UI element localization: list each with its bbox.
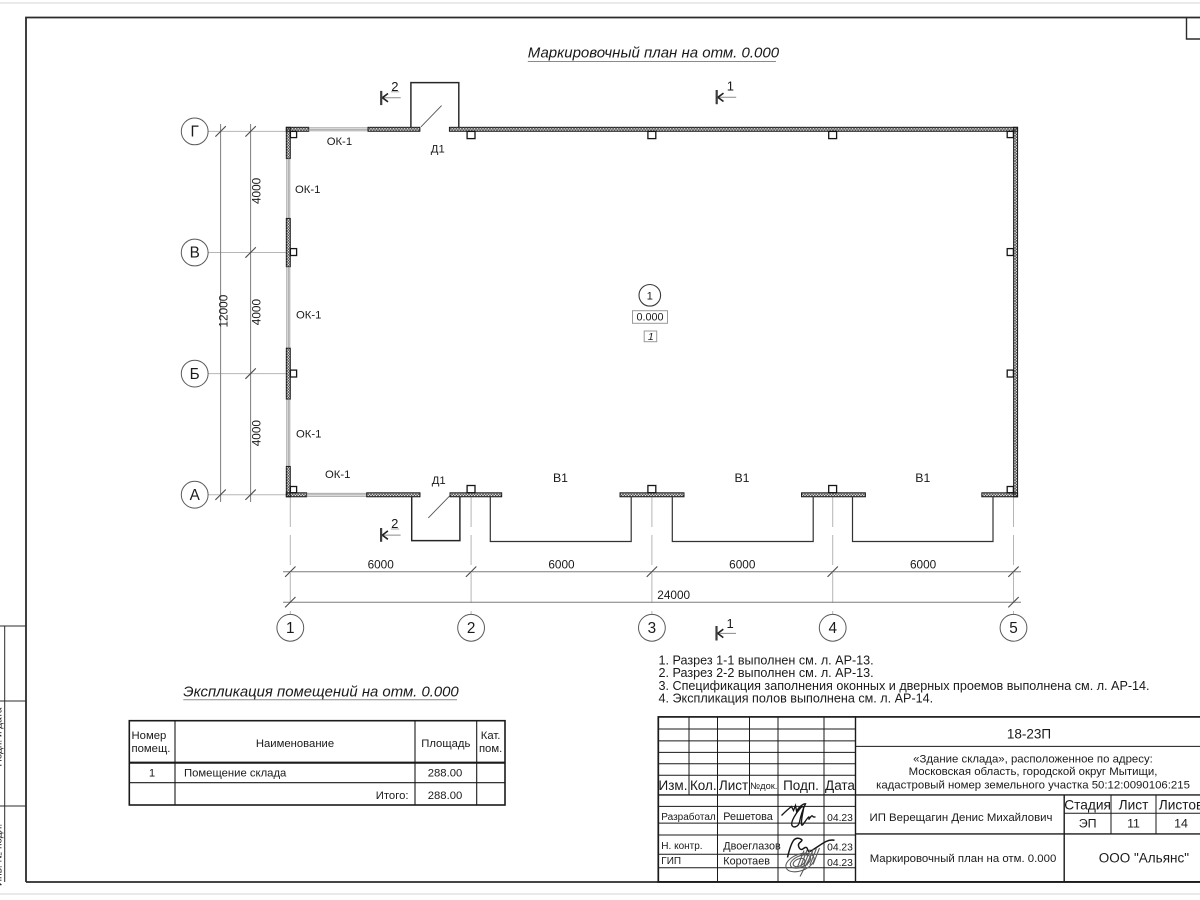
svg-text:пом.: пом. xyxy=(479,743,502,755)
svg-text:Московская область, городской: Московская область, городской округ Мыти… xyxy=(909,766,1158,778)
svg-text:Лист: Лист xyxy=(719,778,748,793)
svg-text:11: 11 xyxy=(1127,817,1140,831)
svg-text:04.23: 04.23 xyxy=(827,813,853,824)
svg-text:ОК-1: ОК-1 xyxy=(325,469,350,481)
svg-text:0.000: 0.000 xyxy=(636,312,663,324)
svg-text:Разработал: Разработал xyxy=(661,811,716,823)
svg-text:«Здание склада», расположенное: «Здание склада», расположенное по адресу… xyxy=(913,753,1153,765)
svg-text:2: 2 xyxy=(467,620,476,637)
svg-text:ОК-1: ОК-1 xyxy=(327,136,352,148)
svg-text:ОК-1: ОК-1 xyxy=(296,309,321,321)
svg-text:Листов: Листов xyxy=(1159,798,1200,813)
svg-text:1: 1 xyxy=(647,290,653,302)
svg-text:4000: 4000 xyxy=(249,420,263,447)
svg-text:В1: В1 xyxy=(734,471,749,485)
svg-text:4000: 4000 xyxy=(249,299,263,326)
svg-text:Номер: Номер xyxy=(132,730,167,742)
svg-text:Д1: Д1 xyxy=(432,475,446,487)
svg-text:Решетова: Решетова xyxy=(723,811,773,823)
svg-text:Д1: Д1 xyxy=(431,143,445,155)
svg-text:1: 1 xyxy=(727,79,734,94)
svg-text:24000: 24000 xyxy=(657,588,690,602)
svg-text:№док.: №док. xyxy=(750,781,777,791)
svg-text:1: 1 xyxy=(727,616,734,631)
svg-text:Двоеглазов: Двоеглазов xyxy=(723,841,781,853)
svg-text:Инв. № подл.: Инв. № подл. xyxy=(0,824,4,886)
svg-text:Коротаев: Коротаев xyxy=(723,856,770,868)
svg-text:4. Экспликация полов выполнена: 4. Экспликация полов выполнена см. л. АР… xyxy=(659,692,934,706)
svg-text:ООО "Альянс": ООО "Альянс" xyxy=(1099,851,1189,866)
svg-text:ГИП: ГИП xyxy=(661,856,681,867)
svg-text:В1: В1 xyxy=(915,471,930,485)
svg-text:6000: 6000 xyxy=(729,557,756,571)
svg-text:Лист: Лист xyxy=(1119,798,1149,813)
svg-text:Подп. и дата: Подп. и дата xyxy=(0,707,4,766)
svg-text:Маркировочный план на отм. 0.0: Маркировочный план на отм. 0.000 xyxy=(528,45,780,62)
svg-text:Итого:: Итого: xyxy=(376,790,409,802)
svg-text:4: 4 xyxy=(828,620,837,637)
svg-text:ОК-1: ОК-1 xyxy=(296,428,321,440)
svg-text:6000: 6000 xyxy=(910,557,937,571)
svg-text:Помещение склада: Помещение склада xyxy=(184,767,287,779)
svg-text:6000: 6000 xyxy=(548,557,575,571)
svg-text:04.23: 04.23 xyxy=(827,843,853,854)
svg-text:14: 14 xyxy=(1174,817,1188,831)
svg-text:ОК-1: ОК-1 xyxy=(295,184,320,196)
svg-text:3: 3 xyxy=(648,620,657,637)
svg-text:Кат.: Кат. xyxy=(481,730,501,742)
svg-text:Г: Г xyxy=(191,124,199,141)
svg-text:Подп.: Подп. xyxy=(783,778,819,793)
svg-text:Дата: Дата xyxy=(825,778,855,793)
svg-text:А: А xyxy=(190,487,201,504)
svg-text:288.00: 288.00 xyxy=(428,790,463,802)
svg-text:1: 1 xyxy=(149,767,155,779)
svg-text:6000: 6000 xyxy=(368,557,395,571)
svg-text:помещ.: помещ. xyxy=(132,743,171,755)
svg-text:1: 1 xyxy=(648,331,654,343)
svg-text:288.00: 288.00 xyxy=(428,767,463,779)
svg-text:Наименование: Наименование xyxy=(256,738,334,750)
svg-text:18-23П: 18-23П xyxy=(1007,727,1051,742)
svg-text:В1: В1 xyxy=(553,471,568,485)
svg-text:В: В xyxy=(190,245,200,262)
svg-text:4000: 4000 xyxy=(249,177,263,204)
svg-text:ИП Верещагин Денис Михайлович: ИП Верещагин Денис Михайлович xyxy=(870,812,1053,824)
svg-text:Н. контр.: Н. контр. xyxy=(661,841,702,852)
svg-text:Изм.: Изм. xyxy=(659,778,688,793)
svg-text:Б: Б xyxy=(190,366,200,383)
svg-text:04.23: 04.23 xyxy=(827,858,853,869)
svg-text:Маркировочный план на отм. 0.0: Маркировочный план на отм. 0.000 xyxy=(870,853,1057,865)
svg-text:Экспликация помещений на отм.: Экспликация помещений на отм. 0.000 xyxy=(183,684,459,700)
svg-text:5: 5 xyxy=(1009,620,1018,637)
svg-text:кадастровый номер земельного у: кадастровый номер земельного участка 50:… xyxy=(876,779,1190,791)
svg-text:12000: 12000 xyxy=(217,294,231,327)
svg-text:ЭП: ЭП xyxy=(1079,817,1097,831)
svg-text:Стадия: Стадия xyxy=(1064,798,1111,813)
svg-text:Кол.: Кол. xyxy=(690,778,717,793)
svg-text:1: 1 xyxy=(286,620,295,637)
svg-text:Площадь: Площадь xyxy=(421,738,470,750)
